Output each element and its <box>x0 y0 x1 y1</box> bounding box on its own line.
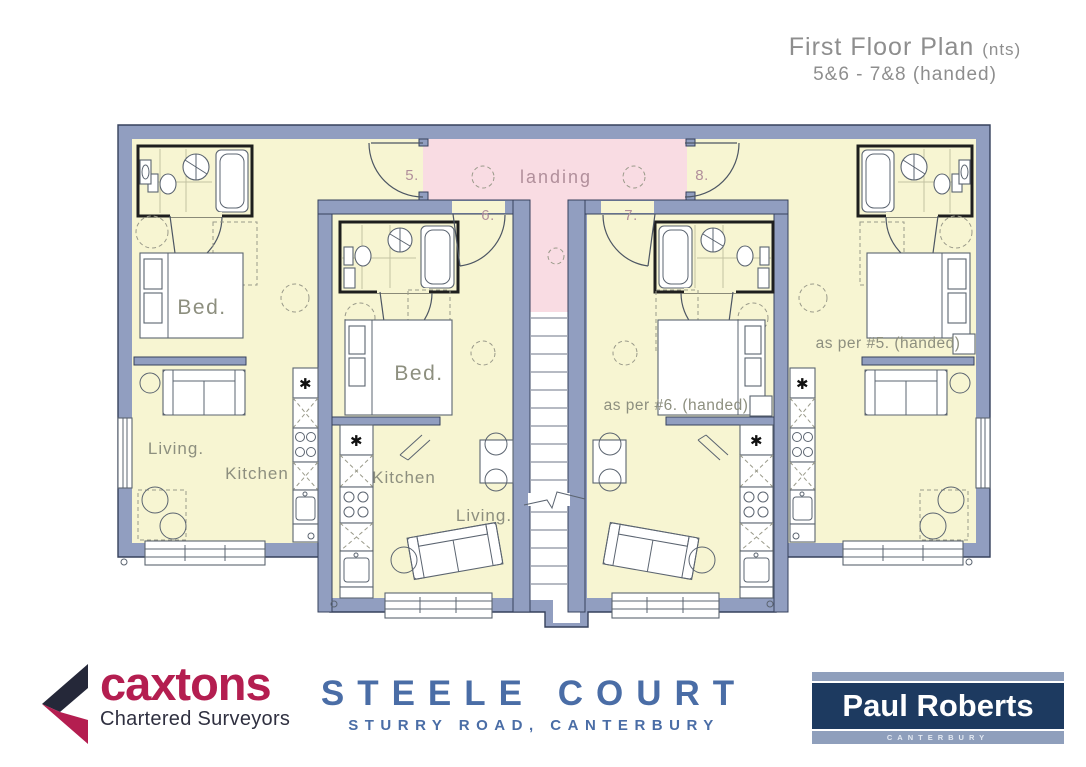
unit-number-8: 8. <box>695 167 709 184</box>
kitchen-units-8: ✱ <box>790 368 815 542</box>
caxtons-tagline: Chartered Surveyors <box>100 708 290 731</box>
basin <box>758 268 769 288</box>
caxtons-logo: caxtons Chartered Surveyors <box>30 662 300 748</box>
room-label-bed-5: Bed. <box>177 296 226 319</box>
sofa-5 <box>163 370 245 415</box>
appliance-icon: ✱ <box>750 433 763 450</box>
toilet <box>355 246 371 266</box>
window-right <box>976 418 990 488</box>
floor-plan-drawing: ✱ Bed. Living. Kitchen 5. <box>0 0 1086 767</box>
window-bay-unit6 <box>385 593 492 618</box>
paul-roberts-top-bar <box>812 672 1064 681</box>
room-label-kitchen-6: Kitchen <box>372 468 436 487</box>
hob <box>293 428 318 462</box>
handed-note-8: as per #5. (handed) <box>816 335 961 352</box>
unit-number-7: 7. <box>624 207 638 224</box>
caxtons-chevron-icon <box>30 662 92 748</box>
stairwell <box>530 312 568 600</box>
paul-roberts-name: Paul Roberts <box>812 683 1064 729</box>
window-left <box>118 418 132 488</box>
kitchen-units-6: ✱ <box>340 425 373 598</box>
kitchen-units-7: ✱ <box>740 425 773 598</box>
bed-8 <box>867 253 970 338</box>
dining-table-6 <box>480 433 513 491</box>
toilet <box>737 246 753 266</box>
room-label-kitchen-5: Kitchen <box>225 464 289 483</box>
kitchen-units-5: ✱ <box>293 368 318 542</box>
sofa-8 <box>865 370 947 415</box>
project-title-block: STEELE COURT STURRY ROAD, CANTERBURY <box>295 674 773 734</box>
room-label-living-6: Living. <box>456 506 512 525</box>
appliance-icon: ✱ <box>350 433 363 450</box>
window-bay-unit7 <box>612 593 719 618</box>
room-label-living-5: Living. <box>148 439 204 458</box>
landing-label: landing <box>520 167 592 187</box>
unit-number-5: 5. <box>405 167 419 184</box>
project-address: STURRY ROAD, CANTERBURY <box>295 717 773 734</box>
window-bay-unit8 <box>843 541 963 565</box>
hob <box>340 487 373 523</box>
appliance-icon: ✱ <box>796 376 809 393</box>
room-label-bed-6: Bed. <box>394 362 443 385</box>
basin <box>344 268 355 288</box>
paul-roberts-logo: Paul Roberts CANTERBURY <box>812 672 1064 744</box>
paul-roberts-location: CANTERBURY <box>812 731 1064 744</box>
caxtons-name: caxtons <box>100 662 290 707</box>
appliance-icon: ✱ <box>299 376 312 393</box>
unit-number-6: 6. <box>481 207 495 224</box>
project-name: STEELE COURT <box>295 674 773 714</box>
hob <box>790 428 815 462</box>
window-bay-unit5 <box>145 541 265 565</box>
handed-note-7: as per #6. (handed) <box>604 397 749 414</box>
hob <box>740 487 773 523</box>
toilet <box>160 174 176 194</box>
toilet <box>934 174 950 194</box>
dining-table-7 <box>593 433 626 491</box>
radiator <box>750 396 772 416</box>
